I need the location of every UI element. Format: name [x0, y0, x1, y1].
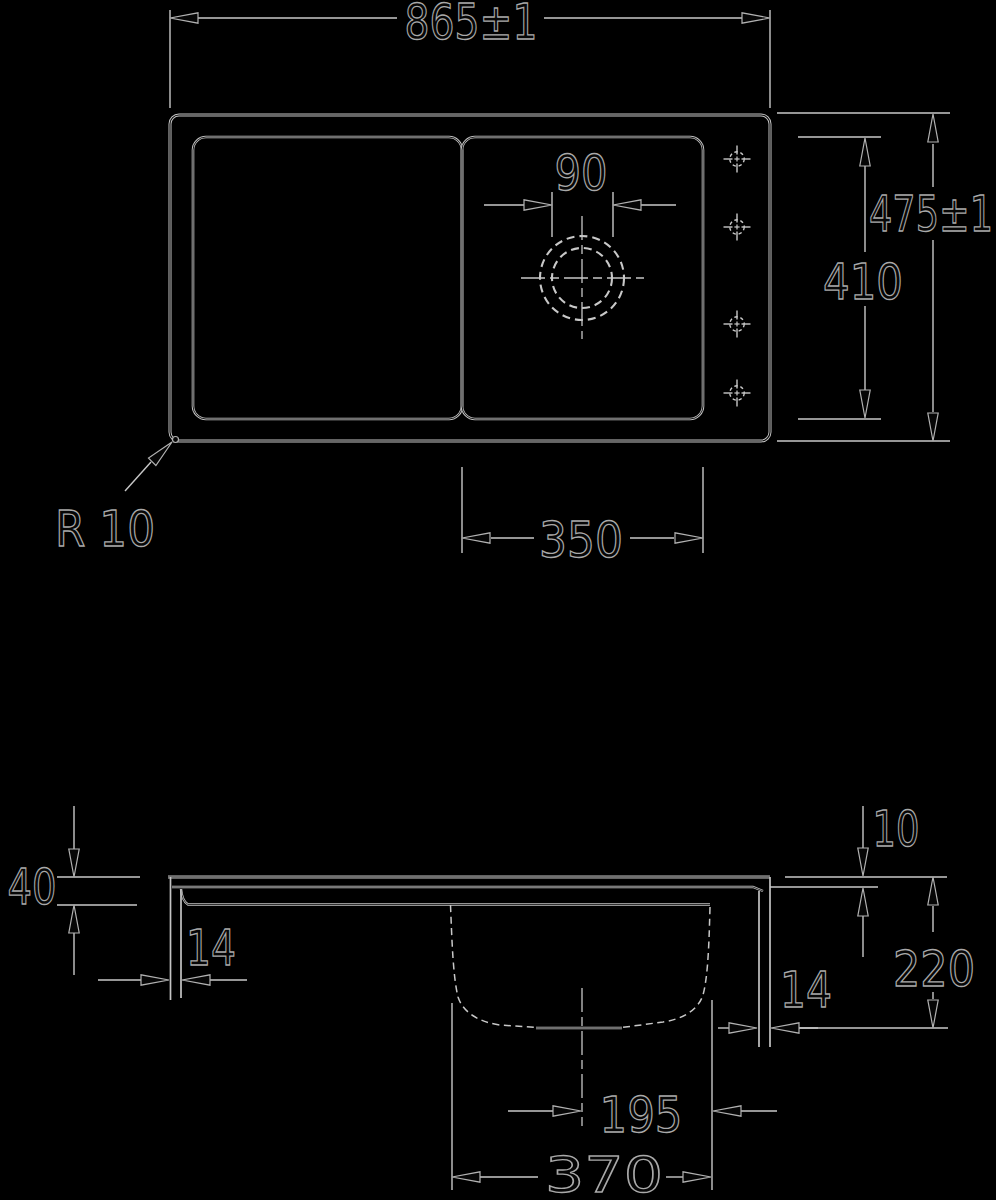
- arrowhead: [928, 114, 938, 142]
- dim-label-rim-thickness: 10: [873, 800, 920, 858]
- arrowhead: [524, 200, 552, 210]
- dim-bowl-width: 350: [462, 467, 703, 569]
- bowl-left-wall-curve: [451, 905, 537, 1028]
- arrowhead: [69, 905, 79, 933]
- dim-label-right-wall: 14: [780, 961, 832, 1019]
- dim-inner-depth: 410: [798, 137, 903, 419]
- section-view: 40 14 10 220: [8, 800, 976, 1200]
- arrowhead: [729, 1023, 757, 1033]
- dim-right-wall: 14: [718, 961, 832, 1033]
- top-view: 865±1 475±1 410: [55, 0, 993, 569]
- drain-hole: [521, 216, 644, 339]
- arrowhead: [858, 888, 868, 916]
- arrowhead: [860, 138, 870, 166]
- arrowhead: [452, 1172, 480, 1182]
- dim-drainer-depth: 40: [8, 806, 141, 975]
- dim-drain-diameter: 90: [484, 144, 676, 237]
- tap-hole-marker: [724, 380, 751, 407]
- arrowhead: [141, 975, 169, 985]
- sink-technical-drawing: 865±1 475±1 410: [0, 0, 996, 1200]
- dim-left-wall: 14: [98, 919, 247, 985]
- arrowhead: [613, 200, 641, 210]
- dim-label-bowl-depth: 220: [893, 940, 975, 998]
- dim-label-inner-depth: 410: [823, 253, 903, 311]
- arrowhead: [860, 390, 870, 418]
- dim-label-corner-radius: R 10: [55, 500, 155, 558]
- arrowhead: [553, 1106, 581, 1116]
- sink-outer-outline: [170, 115, 770, 441]
- dim-label-left-wall: 14: [186, 919, 236, 977]
- arrowhead: [675, 533, 703, 543]
- dim-label-drainer-depth: 40: [8, 858, 57, 916]
- arrowhead: [928, 1000, 938, 1028]
- arrowhead: [462, 533, 490, 543]
- dim-label-bowl-bottom-width: 370: [545, 1146, 663, 1200]
- tap-hole-marker: [724, 146, 751, 173]
- radius-point-marker: [173, 437, 179, 443]
- dim-label-drain-diameter: 90: [555, 144, 608, 202]
- tap-hole-marker: [724, 311, 751, 338]
- arrowhead: [149, 442, 173, 466]
- dim-drain-offset: 195: [508, 1086, 777, 1144]
- dim-overall-width: 865±1: [170, 0, 770, 108]
- arrowhead: [683, 1172, 711, 1182]
- arrowhead: [928, 413, 938, 441]
- bowl-right-wall-curve: [622, 907, 710, 1028]
- drainboard-outline: [193, 137, 462, 419]
- arrowhead: [170, 13, 198, 23]
- arrowhead: [69, 849, 79, 877]
- leader-line: [125, 462, 151, 491]
- dim-label-overall-width: 865±1: [405, 0, 538, 51]
- tap-hole-markers: [724, 146, 751, 407]
- arrowhead: [858, 848, 868, 876]
- arrowhead: [713, 1106, 741, 1116]
- arrowhead: [928, 877, 938, 905]
- callout-corner-radius: R 10: [55, 437, 179, 559]
- arrowhead: [742, 13, 770, 23]
- dim-label-drain-offset: 195: [600, 1086, 683, 1144]
- dim-label-overall-depth: 475±1: [869, 185, 993, 243]
- arrowhead: [771, 1023, 799, 1033]
- tap-hole-marker: [724, 214, 751, 241]
- dim-label-bowl-width: 350: [539, 511, 623, 569]
- dim-rim-thickness: 10: [770, 800, 947, 957]
